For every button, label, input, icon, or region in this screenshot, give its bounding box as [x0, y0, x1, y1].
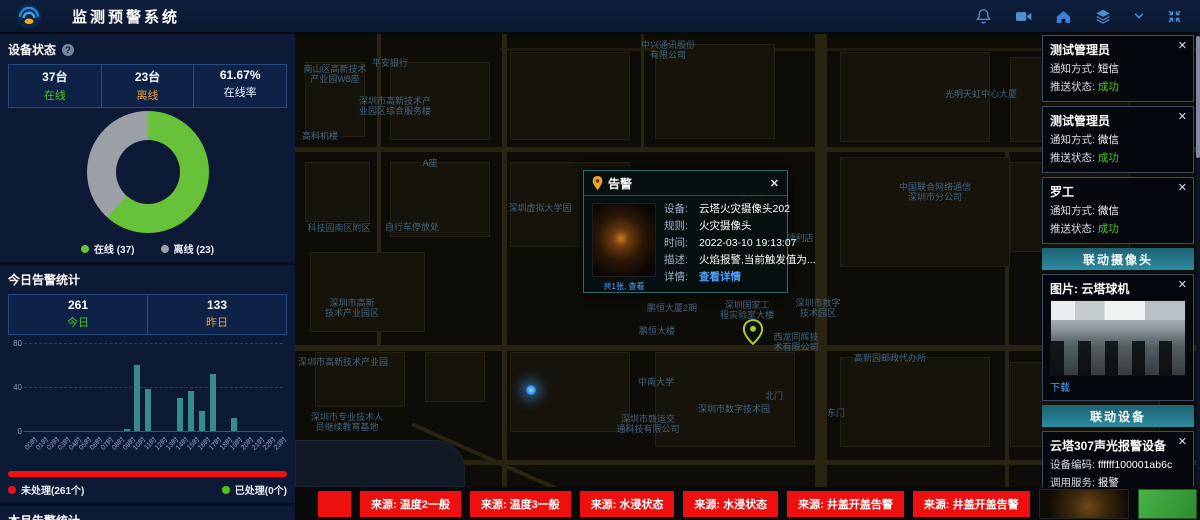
alert-field-value: 云塔火灾摄像头202: [699, 203, 790, 215]
chart-gridline: [24, 387, 283, 388]
month-alarms-title-text: 本月告警统计: [8, 512, 80, 520]
stat-label: 今日: [9, 314, 147, 330]
download-link[interactable]: 下载: [1050, 379, 1070, 394]
home-icon[interactable]: [1054, 7, 1073, 26]
camera-card-title: 图片: 云塔球机: [1050, 280, 1186, 297]
card-field-label: 推送状态:: [1050, 223, 1098, 235]
legend-dot-icon: [161, 245, 169, 253]
unhandled-legend: 未处理(261个): [8, 482, 84, 497]
map-poi-label: 鹏恒大楼: [639, 326, 675, 336]
device-status-stats: 37台在线23台离线61.67%在线率: [8, 64, 287, 108]
today-alarms-title-text: 今日告警统计: [8, 271, 80, 288]
left-sidebar: 设备状态 ? 37台在线23台离线61.67%在线率 在线 (37)离线 (23…: [0, 32, 295, 520]
notification-card: ✕测试管理员通知方式: 短信推送状态: 成功: [1042, 35, 1194, 102]
device-card: ✕云塔307声光报警设备设备编码: ffffff100001ab6c调用服务: …: [1042, 431, 1194, 487]
stat-cell: 37台在线: [9, 65, 101, 107]
alert-source-tile[interactable]: 来源: 水浸状态: [683, 491, 778, 517]
month-alarms-title: 本月告警统计: [8, 512, 287, 520]
alert-popup: 告警 ✕ 共1张, 查看 设备:云塔火灾摄像头202规则:火灾摄像头时间:202…: [583, 170, 788, 293]
alert-thumbnail-block: 共1张, 查看: [592, 203, 656, 292]
bottom-alert-bar: 来源: 温度2一般来源: 温度3一般来源: 水浸状态来源: 水浸状态来源: 井盖…: [295, 487, 1200, 520]
card-field: 推送状态: 成功: [1050, 79, 1186, 94]
legend-dot-icon: [81, 245, 89, 253]
top-bar: 监测预警系统: [0, 0, 1200, 34]
alert-field-row: 详情:查看详情: [664, 271, 816, 283]
legend-label: 在线 (37): [94, 241, 135, 256]
map-poi-label: 深圳国家工 程实验室大楼: [720, 300, 774, 320]
map-building-block: [840, 52, 990, 142]
header-actions: [974, 7, 1184, 26]
card-field: 推送状态: 成功: [1050, 221, 1186, 236]
card-field: 推送状态: 成功: [1050, 150, 1186, 165]
stat-label: 离线: [102, 87, 194, 103]
card-field-label: 通知方式:: [1050, 205, 1098, 217]
map-water-area: [295, 440, 465, 487]
chart-bar: [145, 389, 151, 431]
alert-source-tile[interactable]: 来源: 温度3一般: [470, 491, 571, 517]
alert-source-tile[interactable]: 来源: 井盖开盖告警: [913, 491, 1030, 517]
map-poi-label: 深圳市专业技术人 员继续教育基地: [311, 412, 383, 432]
device-marker-dot[interactable]: [526, 385, 536, 395]
alert-field-label: 规则:: [664, 220, 699, 232]
alert-field-label: 详情:: [664, 271, 699, 283]
notification-card: ✕罗工通知方式: 微信推送状态: 成功: [1042, 177, 1194, 244]
hourly-alarm-bar-chart: 0408000时01时02时03时04时05时06时07时08时09时10时11…: [8, 337, 287, 461]
map-building-block: [655, 44, 775, 139]
map-building-block: [390, 162, 490, 237]
chart-bar: [188, 391, 194, 431]
map-building-block: [305, 162, 370, 222]
red-dot-icon: [8, 486, 16, 494]
view-details-link[interactable]: 查看详情: [699, 271, 741, 283]
alert-popup-title: 告警: [608, 175, 632, 192]
layers-icon[interactable]: [1093, 7, 1113, 26]
map-road: [815, 32, 827, 487]
donut-hole: [116, 140, 180, 204]
y-axis-tick: 0: [9, 427, 22, 436]
card-field: 通知方式: 微信: [1050, 203, 1186, 218]
device-status-donut-chart: 在线 (37)离线 (23): [8, 108, 287, 256]
stat-cell: 61.67%在线率: [193, 65, 286, 107]
camera-snapshot-image[interactable]: [1050, 300, 1186, 376]
map-road: [641, 32, 644, 147]
close-icon[interactable]: ✕: [1178, 181, 1187, 194]
camera-card: ✕ 图片: 云塔球机 下载: [1042, 274, 1194, 401]
green-dot-icon: [222, 486, 230, 494]
stat-cell: 133昨日: [147, 295, 286, 334]
alert-field-label: 时间:: [664, 237, 699, 249]
card-field-value: ffffff100001ab6c: [1098, 459, 1172, 471]
y-axis-tick: 80: [9, 339, 22, 348]
chart-bar: [134, 365, 140, 431]
alert-source-tile[interactable]: 来源: 水浸状态: [580, 491, 675, 517]
stat-cell: 261今日: [9, 295, 147, 334]
app-logo-icon: [16, 3, 42, 29]
alert-field-row: 规则:火灾摄像头: [664, 220, 816, 232]
today-alarms-stats: 261今日133昨日: [8, 294, 287, 335]
map-poi-label: 科技园南区附区: [307, 223, 370, 233]
camera-feed-thumbnail[interactable]: [1138, 489, 1197, 519]
card-field-value: 短信: [1098, 63, 1119, 75]
stat-value: 23台: [102, 68, 194, 85]
alert-source-tile[interactable]: [318, 491, 351, 517]
close-icon[interactable]: ✕: [770, 177, 779, 190]
stat-cell: 23台离线: [101, 65, 194, 107]
card-field-label: 调用服务:: [1050, 477, 1098, 487]
map-building-block: [315, 352, 405, 407]
map-building-block: [510, 52, 630, 140]
device-cards: ✕云塔307声光报警设备设备编码: ffffff100001ab6c调用服务: …: [1042, 431, 1194, 487]
card-field: 通知方式: 微信: [1050, 132, 1186, 147]
process-status-row: 未处理(261个) 已处理(0个): [8, 482, 287, 497]
y-axis-tick: 40: [9, 383, 22, 392]
map-building-block: [655, 352, 795, 447]
alert-field-value: 火焰报警,当前触发值为...: [699, 254, 816, 266]
help-icon[interactable]: ?: [62, 44, 74, 56]
handled-label: 已处理(0个): [235, 482, 287, 497]
card-field-value: 微信: [1098, 134, 1119, 146]
card-field: 设备编码: ffffff100001ab6c: [1050, 457, 1186, 472]
alert-field-label: 设备:: [664, 203, 699, 215]
alert-source-tile[interactable]: 来源: 井盖开盖告警: [787, 491, 904, 517]
bar-plot-area: 0408000时01时02时03时04时05时06时07时08时09时10时11…: [24, 343, 283, 432]
chart-bar: [124, 429, 130, 431]
alert-popup-body: 共1张, 查看 设备:云塔火灾摄像头202规则:火灾摄像头时间:2022-03-…: [584, 196, 787, 299]
handled-legend: 已处理(0个): [222, 482, 287, 497]
alarm-snapshot-thumbnail[interactable]: [1039, 489, 1129, 519]
linked-cameras-header[interactable]: 联动摄像头: [1042, 248, 1194, 270]
video-camera-icon[interactable]: [1013, 7, 1034, 26]
card-field-value: 成功: [1098, 152, 1119, 164]
device-status-title-text: 设备状态: [8, 41, 56, 58]
stat-label: 昨日: [148, 314, 286, 330]
alert-snapshot-image[interactable]: [592, 203, 656, 277]
alert-field-label: 描述:: [664, 254, 699, 266]
page-title: 监测预警系统: [72, 6, 180, 27]
card-title: 云塔307声光报警设备: [1050, 437, 1186, 454]
chart-bar: [199, 411, 205, 431]
notification-cards: ✕测试管理员通知方式: 短信推送状态: 成功✕测试管理员通知方式: 微信推送状态…: [1042, 35, 1194, 244]
map-building-block: [310, 252, 425, 332]
right-sidebar: ✕测试管理员通知方式: 短信推送状态: 成功✕测试管理员通知方式: 微信推送状态…: [1040, 32, 1200, 487]
right-panel-scrollbar[interactable]: [1196, 34, 1200, 487]
chart-bar: [210, 374, 216, 431]
alert-field-row: 时间:2022-03-10 19:13:07: [664, 237, 816, 249]
chevron-down-icon[interactable]: [1133, 10, 1145, 22]
linked-devices-header[interactable]: 联动设备: [1042, 405, 1194, 427]
card-field: 通知方式: 短信: [1050, 61, 1186, 76]
map-building-block: [840, 357, 990, 447]
stat-label: 在线: [9, 87, 101, 103]
donut-legend: 在线 (37)离线 (23): [8, 241, 287, 256]
card-field-label: 通知方式:: [1050, 134, 1098, 146]
unhandled-progress-bar: [8, 471, 287, 477]
section-divider: [0, 262, 295, 265]
map-location-pin-icon[interactable]: [742, 318, 764, 346]
legend-item: 离线 (23): [161, 241, 215, 256]
map-road: [502, 32, 507, 487]
chart-bar: [231, 418, 237, 431]
map-poi-label: 鹏恒大厦2期: [647, 303, 697, 313]
card-field-value: 报警: [1098, 477, 1119, 487]
stat-value: 261: [9, 298, 147, 312]
today-alarms-title: 今日告警统计: [8, 271, 287, 288]
card-field-value: 微信: [1098, 205, 1119, 217]
scrollbar-thumb[interactable]: [1196, 36, 1200, 158]
card-field-label: 通知方式:: [1050, 63, 1098, 75]
notification-card: ✕测试管理员通知方式: 微信推送状态: 成功: [1042, 106, 1194, 173]
alert-field-value: 2022-03-10 19:13:07: [699, 237, 797, 249]
legend-item: 在线 (37): [81, 241, 135, 256]
card-field-label: 推送状态:: [1050, 152, 1098, 164]
card-title: 测试管理员: [1050, 41, 1186, 58]
alert-thumbnail-caption[interactable]: 共1张, 查看: [592, 281, 656, 292]
section-divider: [0, 503, 295, 506]
stat-value: 133: [148, 298, 286, 312]
alert-popup-header: 告警 ✕: [584, 171, 787, 196]
alert-field-row: 描述:火焰报警,当前触发值为...: [664, 254, 816, 266]
chart-bar: [177, 398, 183, 431]
map-building-block: [425, 352, 485, 402]
unhandled-label: 未处理(261个): [21, 482, 84, 497]
stat-value: 61.67%: [194, 68, 286, 82]
alert-pin-icon: [592, 176, 603, 190]
device-status-title: 设备状态 ?: [8, 41, 287, 58]
close-icon[interactable]: ✕: [1178, 435, 1187, 448]
alert-source-tile[interactable]: 来源: 温度2一般: [360, 491, 461, 517]
app-root: 监测预警系统: [0, 0, 1200, 520]
card-field-label: 推送状态:: [1050, 81, 1098, 93]
card-field-value: 成功: [1098, 81, 1119, 93]
close-icon[interactable]: ✕: [1178, 110, 1187, 123]
close-icon[interactable]: ✕: [1178, 278, 1187, 291]
close-icon[interactable]: ✕: [1178, 39, 1187, 52]
map-building-block: [390, 62, 490, 140]
fullscreen-icon[interactable]: [1165, 7, 1184, 26]
chart-gridline: [24, 343, 283, 344]
legend-label: 离线 (23): [174, 241, 215, 256]
card-field-label: 设备编码:: [1050, 459, 1098, 471]
card-title: 罗工: [1050, 183, 1186, 200]
card-title: 测试管理员: [1050, 112, 1186, 129]
stat-value: 37台: [9, 68, 101, 85]
card-field-value: 成功: [1098, 223, 1119, 235]
stat-label: 在线率: [194, 84, 286, 100]
alert-fields: 设备:云塔火灾摄像头202规则:火灾摄像头时间:2022-03-10 19:13…: [664, 203, 816, 292]
card-field: 调用服务: 报警: [1050, 475, 1186, 487]
map-building-block: [840, 157, 1010, 267]
alert-field-value: 火灾摄像头: [699, 220, 752, 232]
bell-icon[interactable]: [974, 7, 993, 26]
map-building-block: [305, 62, 365, 137]
alert-field-row: 设备:云塔火灾摄像头202: [664, 203, 816, 215]
